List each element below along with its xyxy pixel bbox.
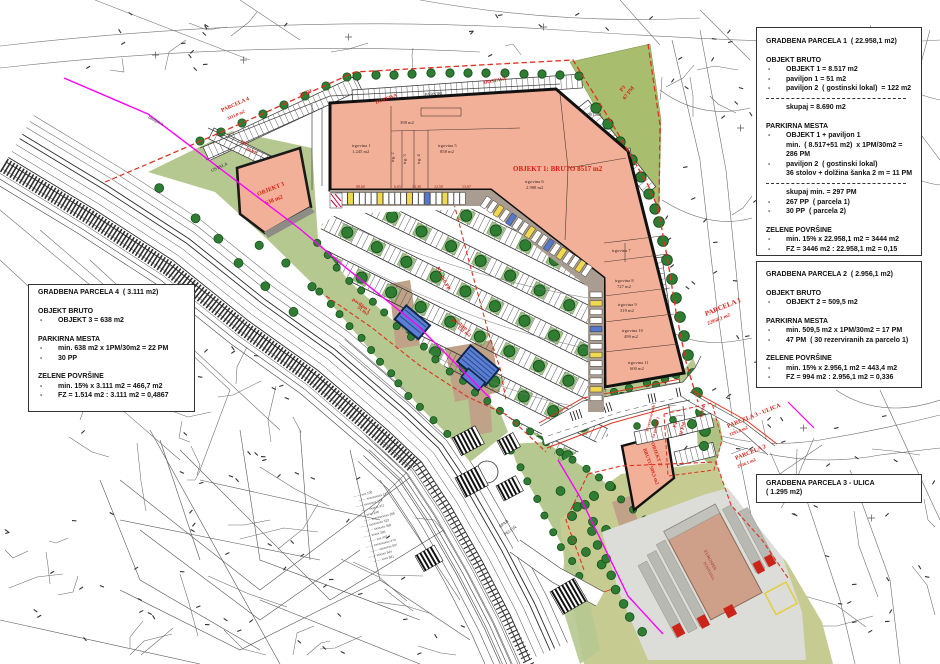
svg-text:1.001 m2: 1.001 m2: [584, 112, 602, 117]
svg-text:398 m2: 398 m2: [400, 120, 415, 125]
svg-text:trgovina 5: trgovina 5: [438, 143, 457, 148]
svg-text:2.988 m2: 2.988 m2: [526, 185, 544, 190]
svg-text:PARCELA 3 - ULICA: PARCELA 3 - ULICA: [727, 403, 783, 430]
svg-text:SPAR: SPAR: [498, 519, 510, 529]
svg-text:727 m2: 727 m2: [617, 284, 632, 289]
svg-text:PARCELA 4: PARCELA 4: [220, 96, 250, 114]
svg-text:bauljnica: bauljnica: [148, 114, 165, 126]
svg-text:319 m2: 319 m2: [620, 308, 635, 313]
svg-text:trgovina 1: trgovina 1: [352, 143, 371, 148]
svg-text:858 m2: 858 m2: [440, 149, 455, 154]
svg-text:trgovina 9: trgovina 9: [618, 302, 637, 307]
svg-text:499 m2: 499 m2: [624, 334, 639, 339]
svg-text:OBJEKT 1: BRUTO 8517 m2: OBJEKT 1: BRUTO 8517 m2: [513, 165, 603, 173]
svg-text:trgovina 7: trgovina 7: [612, 248, 631, 253]
svg-text:trgovina 6: trgovina 6: [525, 179, 544, 184]
svg-text:PARCELA 1: PARCELA 1: [704, 296, 743, 318]
svg-text:trgovina 8: trgovina 8: [615, 278, 634, 283]
svg-text:trgovina 11: trgovina 11: [628, 360, 650, 365]
svg-text:trgovina 10: trgovina 10: [622, 328, 644, 333]
svg-text:trg. 4: trg. 4: [416, 154, 421, 164]
svg-text:1.245 m2: 1.245 m2: [352, 149, 370, 154]
svg-text:trg. 2: trg. 2: [390, 152, 395, 162]
svg-text:600 m2: 600 m2: [630, 366, 645, 371]
svg-text:trg. 3: trg. 3: [402, 154, 407, 164]
svg-text:PELON: PELON: [503, 524, 518, 537]
